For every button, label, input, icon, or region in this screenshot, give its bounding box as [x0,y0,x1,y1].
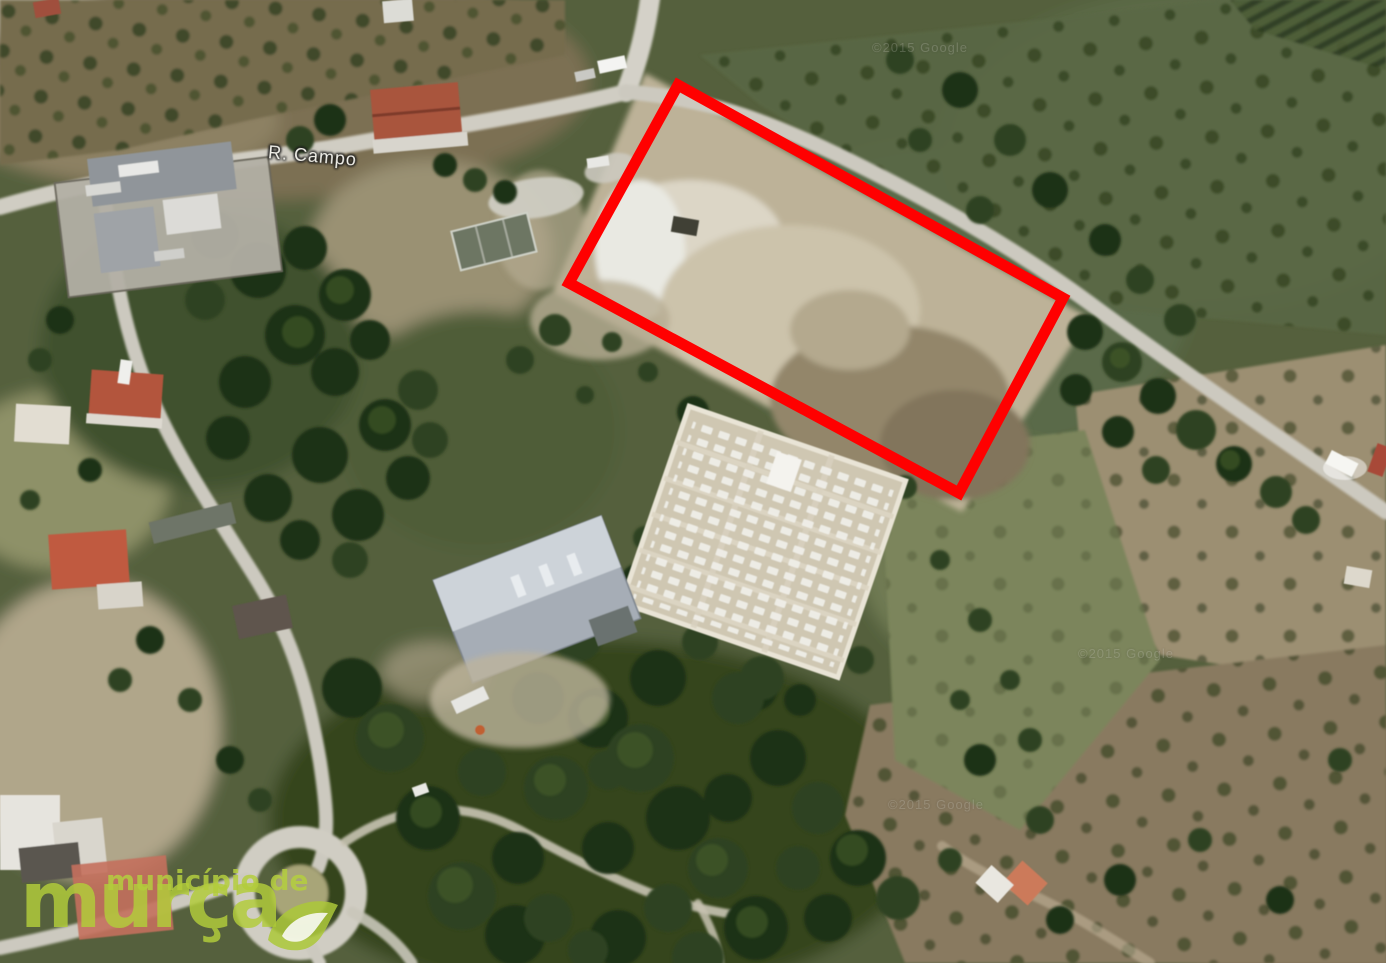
logo-text-line2: murça [20,862,279,940]
municipality-logo: município de murça [12,856,342,960]
red-roof-house [368,82,468,154]
imagery-watermark: ©2015 Google [872,40,968,55]
imagery-watermark: ©2015 Google [888,797,984,812]
satellite-imagery [0,0,1386,963]
bird-icon [264,892,346,954]
imagery-watermark: ©2015 Google [1078,646,1174,661]
satellite-map[interactable]: R. Campo ©2015 Google ©2015 Google ©2015… [0,0,1386,963]
